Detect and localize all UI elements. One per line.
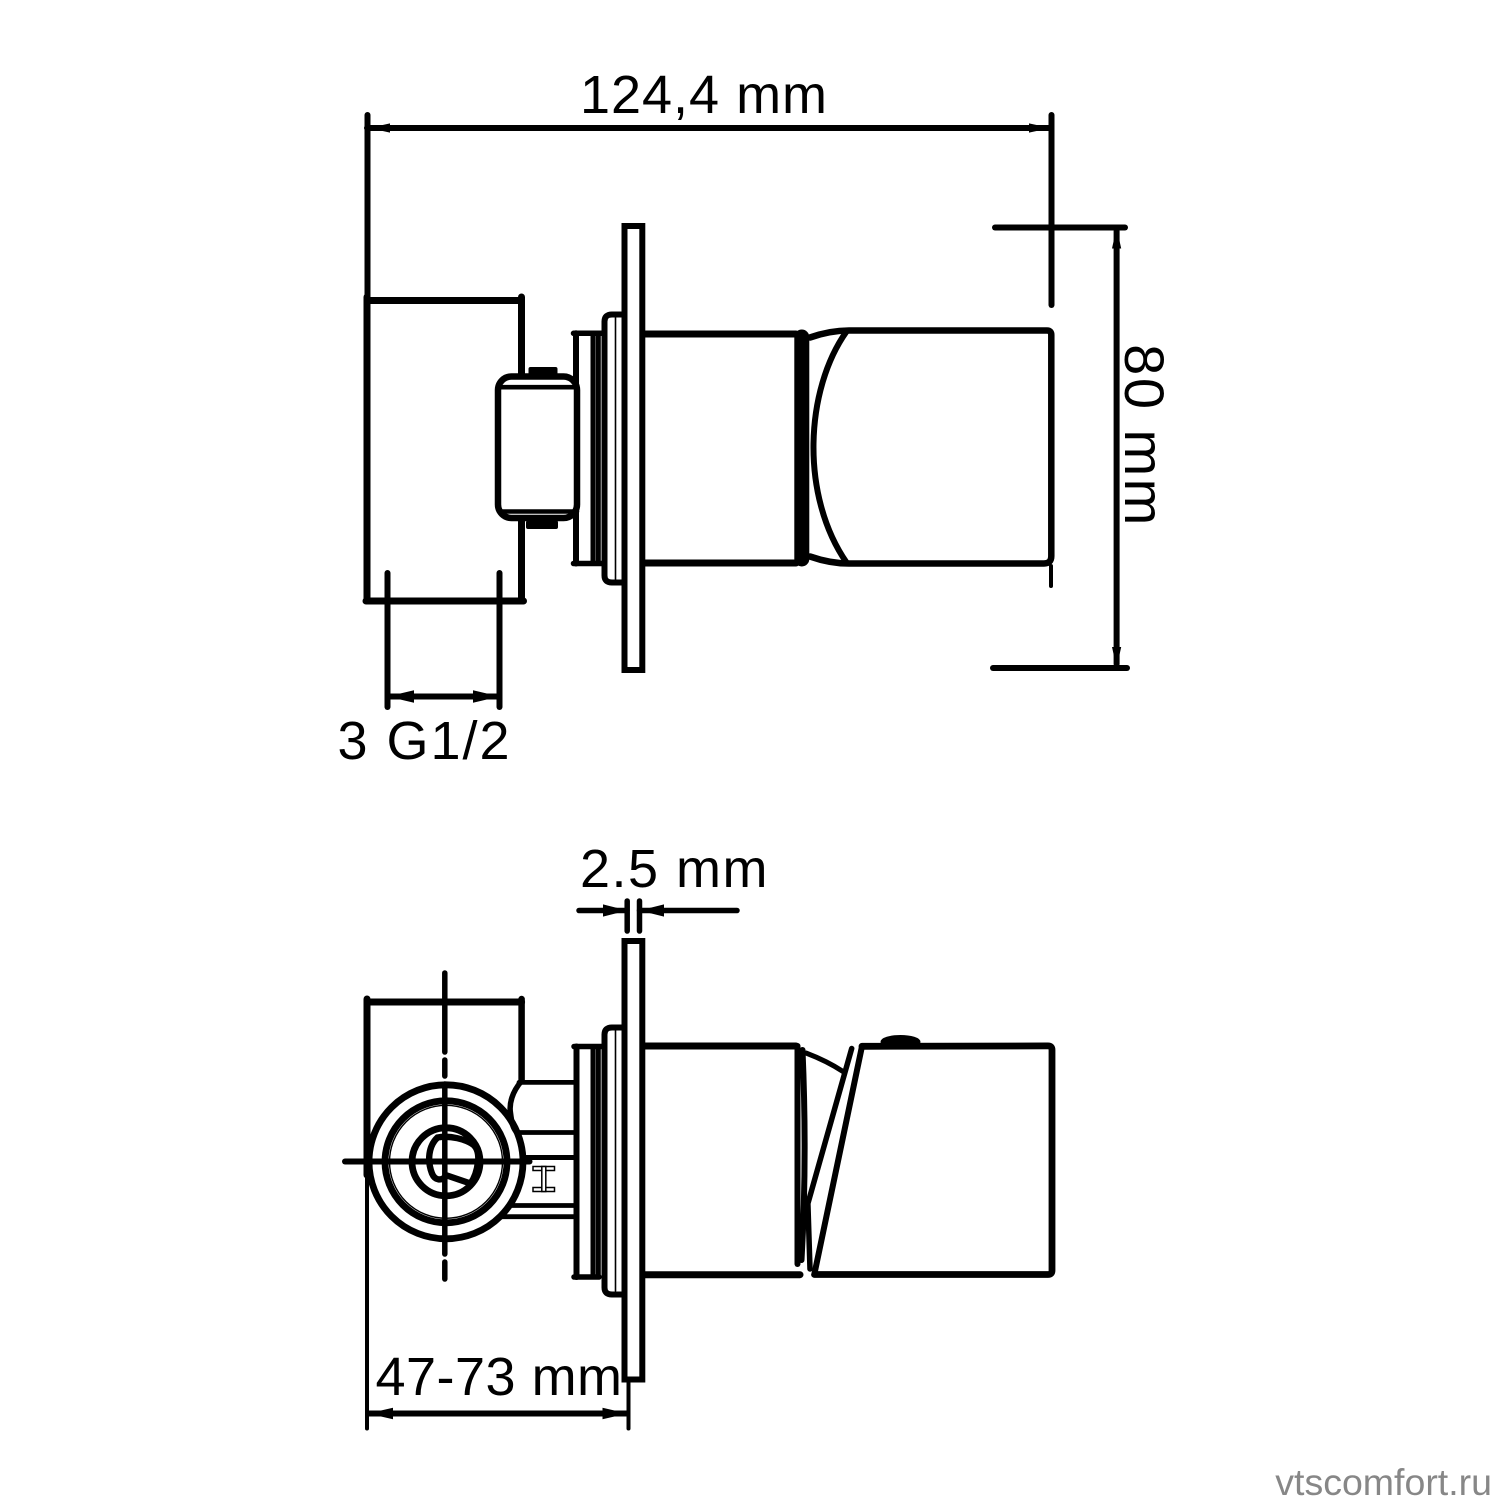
svg-text:3 G1/2: 3 G1/2 xyxy=(337,711,511,771)
svg-text:vtscomfort.ru: vtscomfort.ru xyxy=(1275,1461,1492,1503)
svg-text:80 mm: 80 mm xyxy=(1113,344,1176,528)
svg-text:47-73 mm: 47-73 mm xyxy=(375,1347,622,1407)
svg-text:124,4 mm: 124,4 mm xyxy=(580,65,828,125)
svg-text:2.5 mm: 2.5 mm xyxy=(580,839,769,899)
